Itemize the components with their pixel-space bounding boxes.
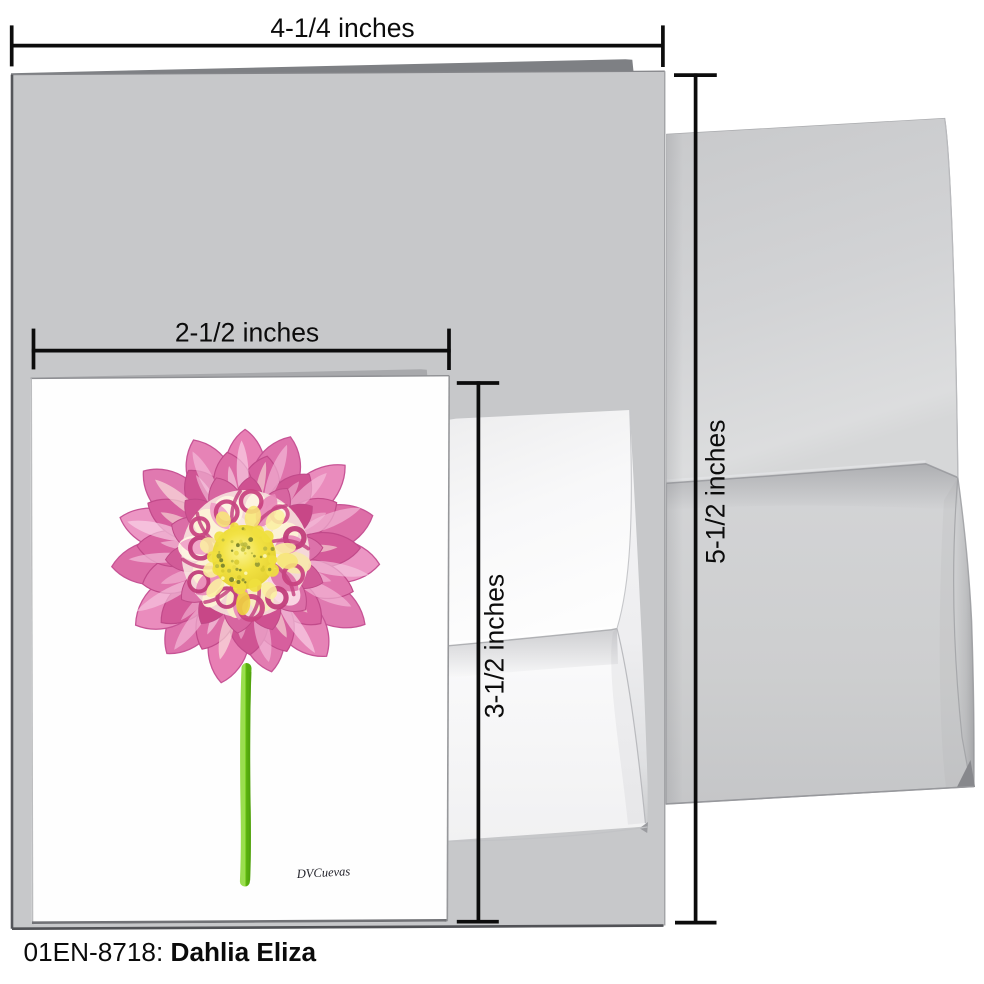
svg-text:2-1/2 inches: 2-1/2 inches bbox=[175, 318, 319, 348]
svg-text:5-1/2 inches: 5-1/2 inches bbox=[700, 420, 730, 564]
svg-text:DVCuevas: DVCuevas bbox=[295, 864, 350, 881]
svg-text:3-1/2 inches: 3-1/2 inches bbox=[480, 574, 510, 718]
svg-text:4-1/4 inches: 4-1/4 inches bbox=[270, 13, 414, 43]
svg-text:01EN-8718: Dahlia Eliza: 01EN-8718: Dahlia Eliza bbox=[24, 937, 317, 967]
